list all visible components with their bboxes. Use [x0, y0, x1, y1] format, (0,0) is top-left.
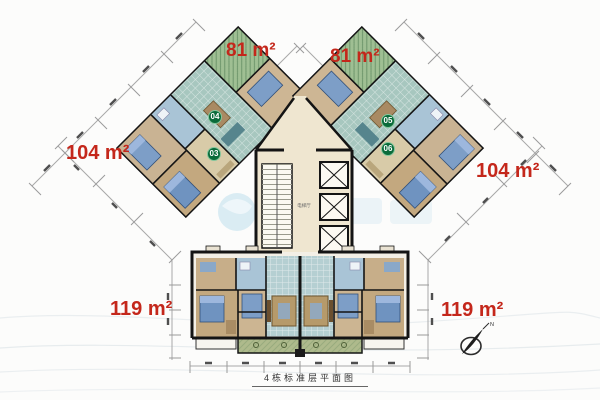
- area-label-mid-right: 104 m²: [476, 161, 539, 181]
- floorplan-drawing: 电梯厅: [0, 0, 600, 400]
- unit-badge-06: 06: [381, 142, 395, 156]
- bottom-unit-left: [196, 246, 300, 349]
- unit-badge-03: 03: [207, 147, 221, 161]
- elevator-icons: [320, 162, 348, 252]
- plan-caption: 4栋标准层平面图: [252, 371, 368, 387]
- area-label-mid-left: 104 m²: [66, 143, 129, 163]
- core-label: 电梯厅: [297, 202, 311, 209]
- area-label-bottom-right: 119 m²: [441, 300, 503, 320]
- floorplan-image: 电梯厅: [0, 0, 600, 400]
- compass-north-label: N: [490, 322, 494, 328]
- area-label-bottom-left: 119 m²: [110, 299, 172, 319]
- compass-icon: N: [461, 322, 494, 355]
- bottom-block: [192, 246, 408, 357]
- unit-badge-04: 04: [208, 110, 222, 124]
- stairs-icon: [262, 164, 292, 248]
- area-label-top-right: 81 m²: [330, 47, 380, 66]
- unit-badge-05: 05: [381, 114, 395, 128]
- bottom-unit-right: [300, 246, 404, 349]
- area-label-top-left: 81 m²: [226, 41, 276, 60]
